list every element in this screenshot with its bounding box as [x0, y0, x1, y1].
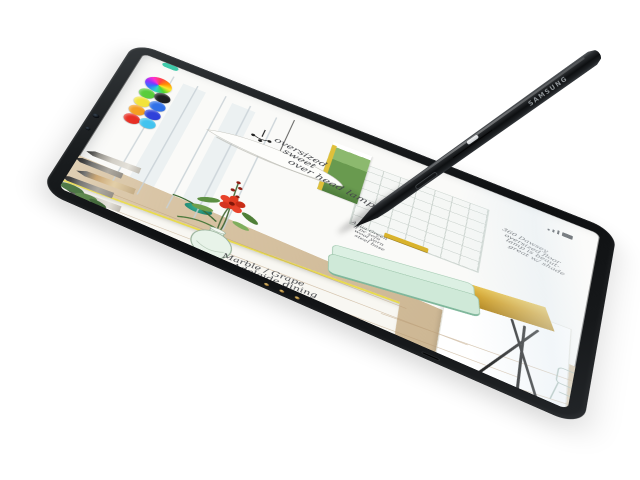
drawing-canvas[interactable] — [129, 85, 599, 409]
pogo-pin — [279, 289, 285, 293]
product-photo: oversized sweet over head lamp ! Marble … — [0, 0, 640, 480]
selected-color-swatch[interactable] — [161, 62, 179, 72]
stylus-seam — [453, 129, 493, 158]
ambient-sensor — [84, 126, 91, 131]
front-camera — [91, 113, 100, 119]
pogo-pin — [264, 282, 270, 286]
pogo-pin — [294, 296, 300, 300]
stylus-brand-label: SAMSUNG — [523, 71, 573, 110]
table-leg — [369, 329, 379, 344]
